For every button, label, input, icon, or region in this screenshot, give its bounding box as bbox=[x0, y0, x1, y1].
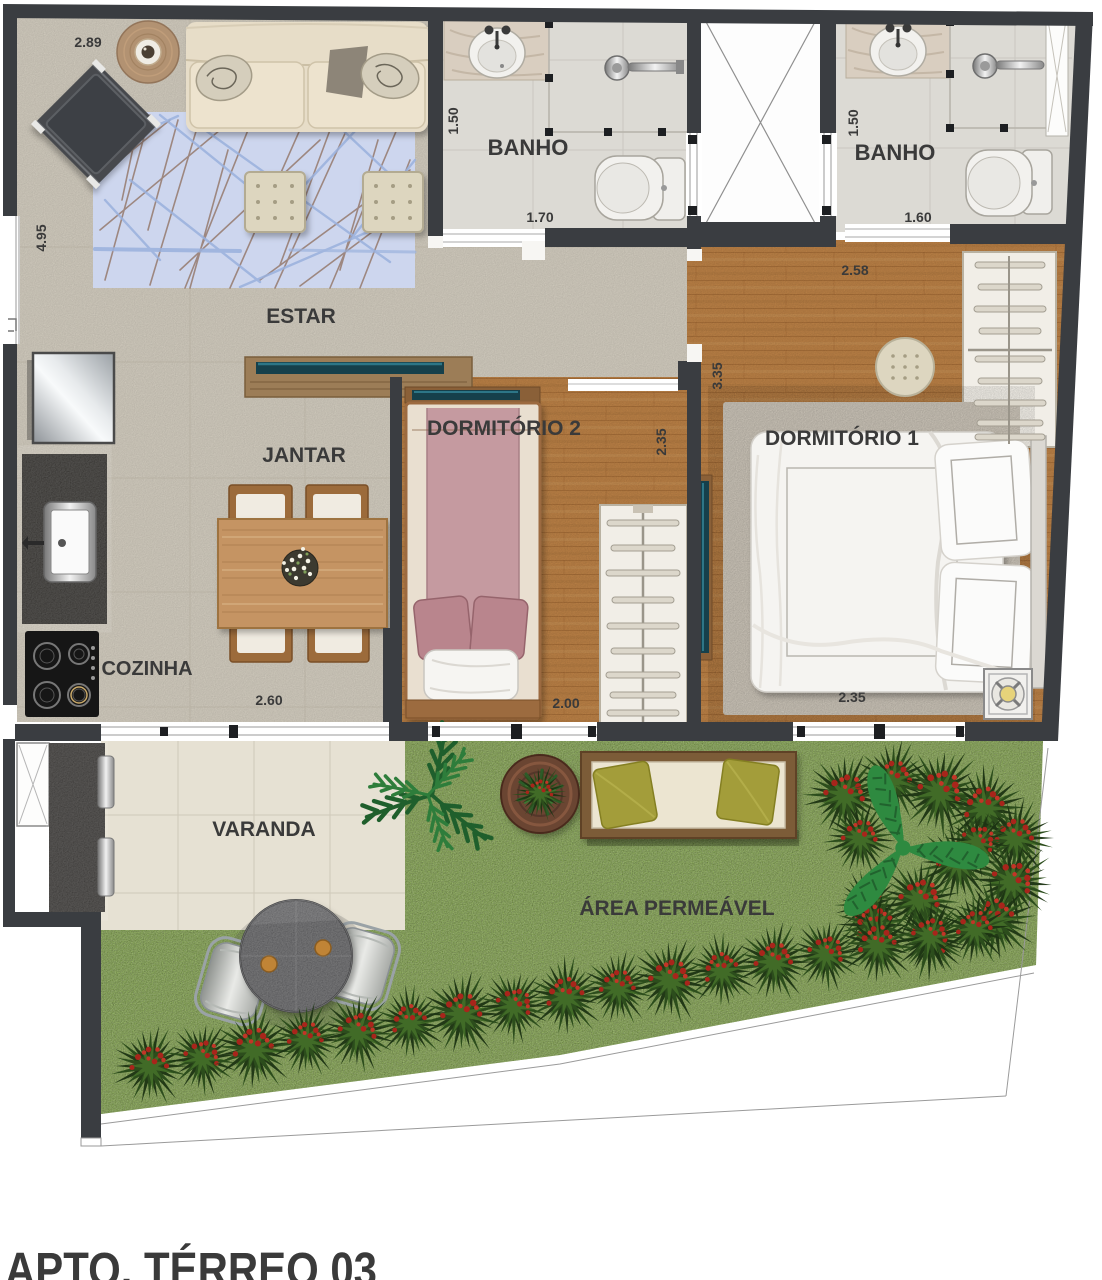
svg-text:2.58: 2.58 bbox=[841, 262, 868, 278]
svg-text:2.00: 2.00 bbox=[552, 695, 579, 711]
svg-text:2.35: 2.35 bbox=[838, 689, 865, 705]
svg-text:ÁREA PERMEÁVEL: ÁREA PERMEÁVEL bbox=[579, 897, 774, 920]
svg-text:COZINHA: COZINHA bbox=[101, 658, 192, 680]
svg-text:ESTAR: ESTAR bbox=[266, 305, 336, 328]
svg-text:1.50: 1.50 bbox=[445, 107, 461, 134]
svg-text:DORMITÓRIO 2: DORMITÓRIO 2 bbox=[427, 416, 581, 440]
svg-text:BANHO: BANHO bbox=[488, 135, 569, 160]
svg-text:3.35: 3.35 bbox=[709, 362, 725, 389]
svg-text:1.50: 1.50 bbox=[845, 109, 861, 136]
svg-text:BANHO: BANHO bbox=[855, 140, 936, 165]
svg-text:APTO. TÉRREO 03: APTO. TÉRREO 03 bbox=[5, 1243, 377, 1280]
svg-text:1.70: 1.70 bbox=[526, 209, 553, 225]
svg-text:JANTAR: JANTAR bbox=[262, 444, 346, 467]
svg-text:DORMITÓRIO 1: DORMITÓRIO 1 bbox=[765, 426, 919, 450]
svg-text:2.60: 2.60 bbox=[255, 692, 282, 708]
svg-text:2.35: 2.35 bbox=[653, 428, 669, 455]
svg-text:1.60: 1.60 bbox=[904, 209, 931, 225]
svg-text:2.89: 2.89 bbox=[74, 34, 101, 50]
svg-text:VARANDA: VARANDA bbox=[212, 818, 315, 841]
svg-text:4.95: 4.95 bbox=[33, 224, 49, 251]
